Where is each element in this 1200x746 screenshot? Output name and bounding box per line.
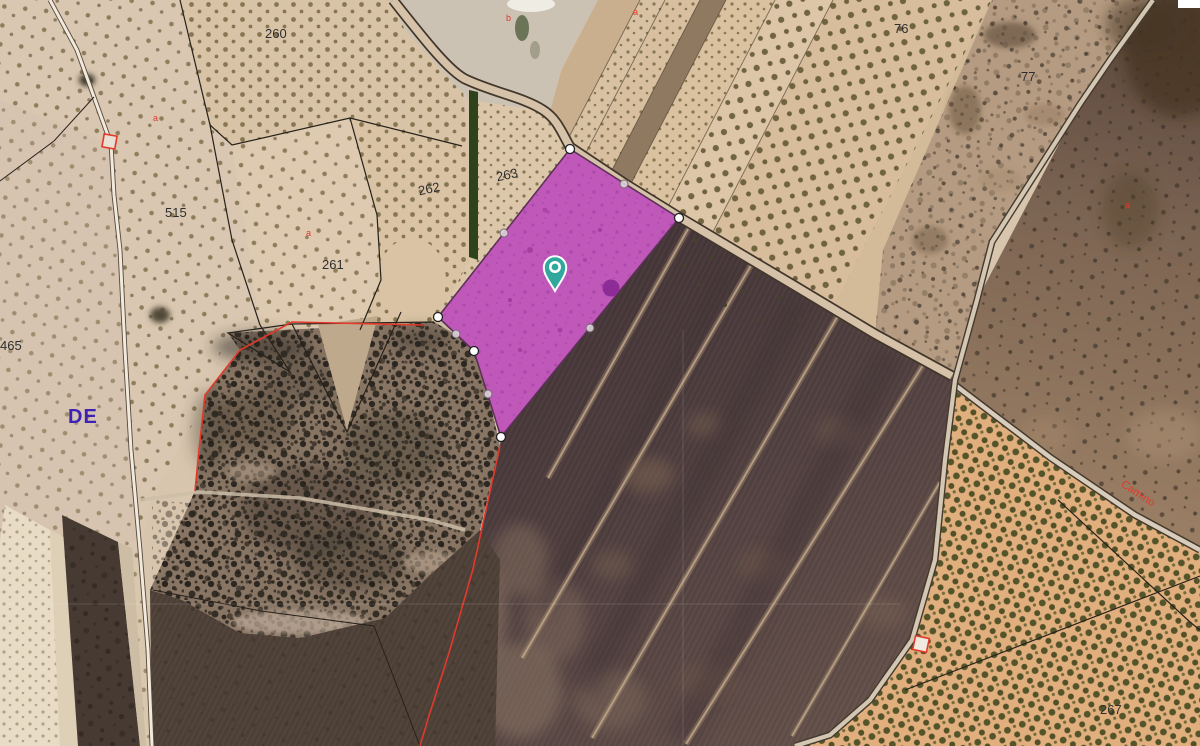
svg-text:a: a xyxy=(153,113,158,123)
svg-text:261: 261 xyxy=(322,257,344,272)
svg-text:a: a xyxy=(306,228,311,238)
svg-text:a: a xyxy=(633,7,638,17)
svg-text:a: a xyxy=(1125,200,1130,210)
svg-text:515: 515 xyxy=(165,205,187,220)
svg-text:76: 76 xyxy=(894,21,908,36)
svg-text:b: b xyxy=(506,13,511,23)
svg-text:260: 260 xyxy=(265,26,287,41)
svg-text:267: 267 xyxy=(1100,702,1122,717)
svg-text:465: 465 xyxy=(0,338,22,353)
svg-text:DE: DE xyxy=(68,406,98,428)
svg-text:77: 77 xyxy=(1021,69,1035,84)
